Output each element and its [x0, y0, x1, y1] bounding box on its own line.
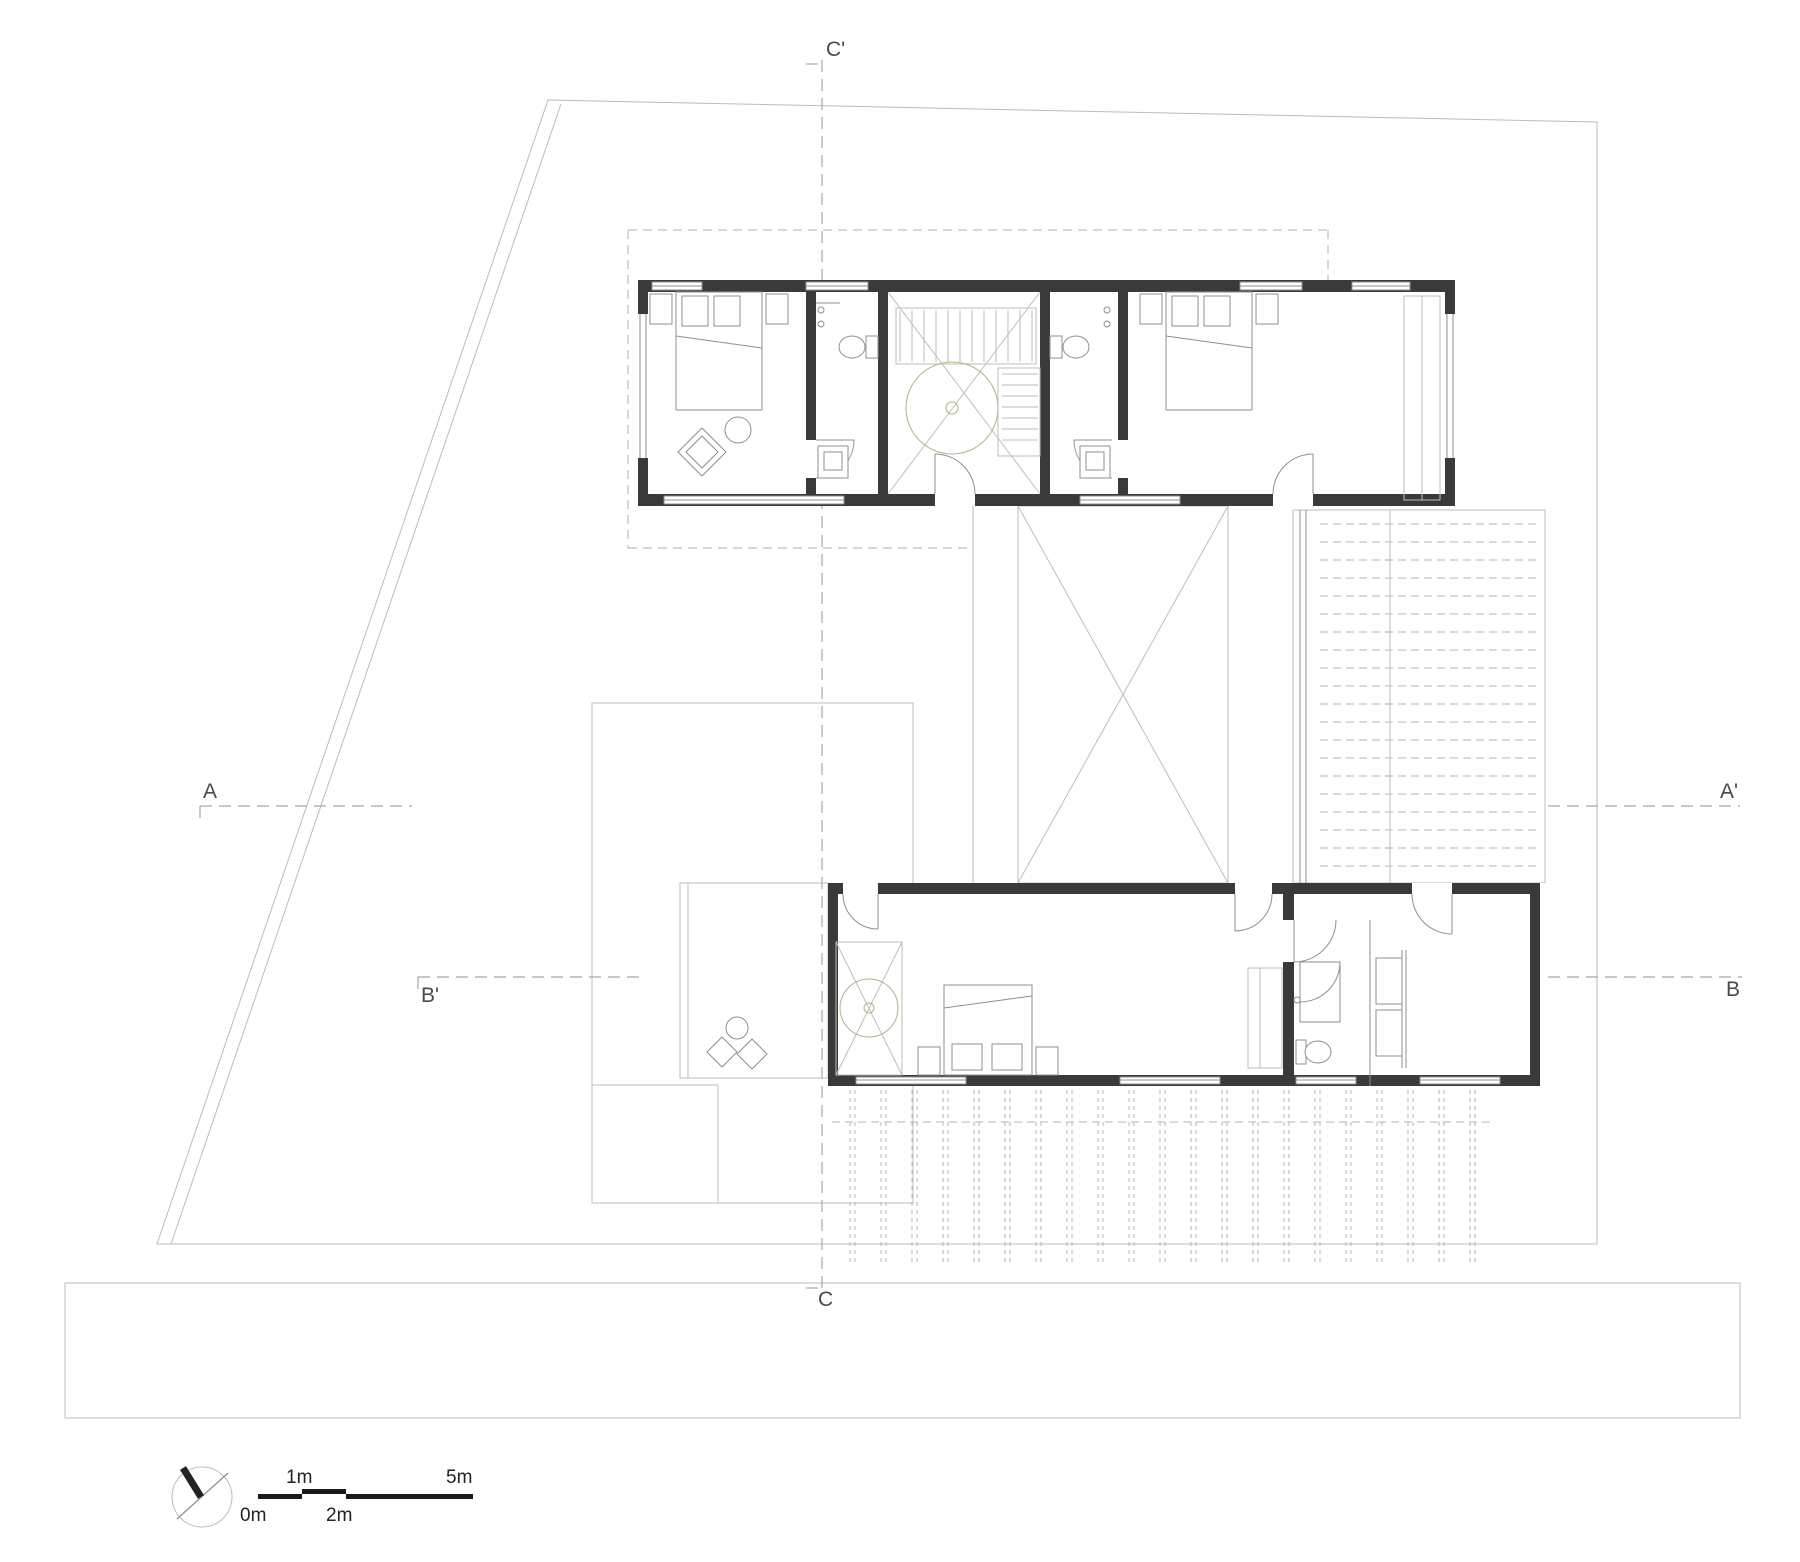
section-line-c [806, 60, 822, 1292]
scale-2m: 2m [326, 1505, 352, 1526]
toilet-icon [1305, 1041, 1331, 1063]
label-a-prime: A' [1720, 780, 1738, 803]
sofa-cushion [1376, 1010, 1402, 1056]
nightstand [1256, 294, 1278, 324]
label-c: C [818, 1288, 833, 1311]
scale-0m: 0m [240, 1505, 266, 1526]
terrace-chair [737, 1039, 767, 1069]
label-a: A [203, 780, 217, 803]
shower [1300, 962, 1340, 1022]
section-line-a [200, 806, 1740, 820]
floor-plan-svg: C' C A A' B' B 1m 5m 0m 2m [0, 0, 1800, 1562]
sofa-cushion [1376, 958, 1402, 1004]
lower-decking-planks [850, 1090, 1475, 1262]
scale-1m: 1m [286, 1467, 312, 1488]
vanity [1080, 446, 1110, 478]
scale-bar: 1m 5m 0m 2m [240, 1467, 473, 1526]
nightstand [1036, 1047, 1058, 1075]
nightstand [650, 294, 672, 324]
vanity [818, 446, 848, 478]
void-double-height [973, 506, 1228, 883]
scale-5m: 5m [446, 1467, 472, 1488]
nightstand [918, 1047, 940, 1075]
toilet-icon [839, 336, 865, 358]
label-b: B [1726, 978, 1740, 1001]
lower-terrace [680, 883, 828, 1078]
label-c-prime: C' [826, 38, 845, 61]
toilet-tank [1050, 336, 1062, 358]
section-labels: C' C A A' B' B [203, 38, 1740, 1311]
nightstand [766, 294, 788, 324]
terrace-table [726, 1017, 748, 1039]
toilet-tank [866, 336, 878, 358]
north-arrow-icon [172, 1467, 232, 1527]
toilet-icon [1063, 336, 1089, 358]
terrace-chair [707, 1037, 737, 1067]
floor-plan-canvas: C' C A A' B' B 1m 5m 0m 2m [0, 0, 1800, 1562]
right-deck [1293, 510, 1545, 883]
nightstand [1140, 294, 1162, 324]
label-b-prime: B' [421, 984, 439, 1007]
road-band [65, 1283, 1740, 1418]
